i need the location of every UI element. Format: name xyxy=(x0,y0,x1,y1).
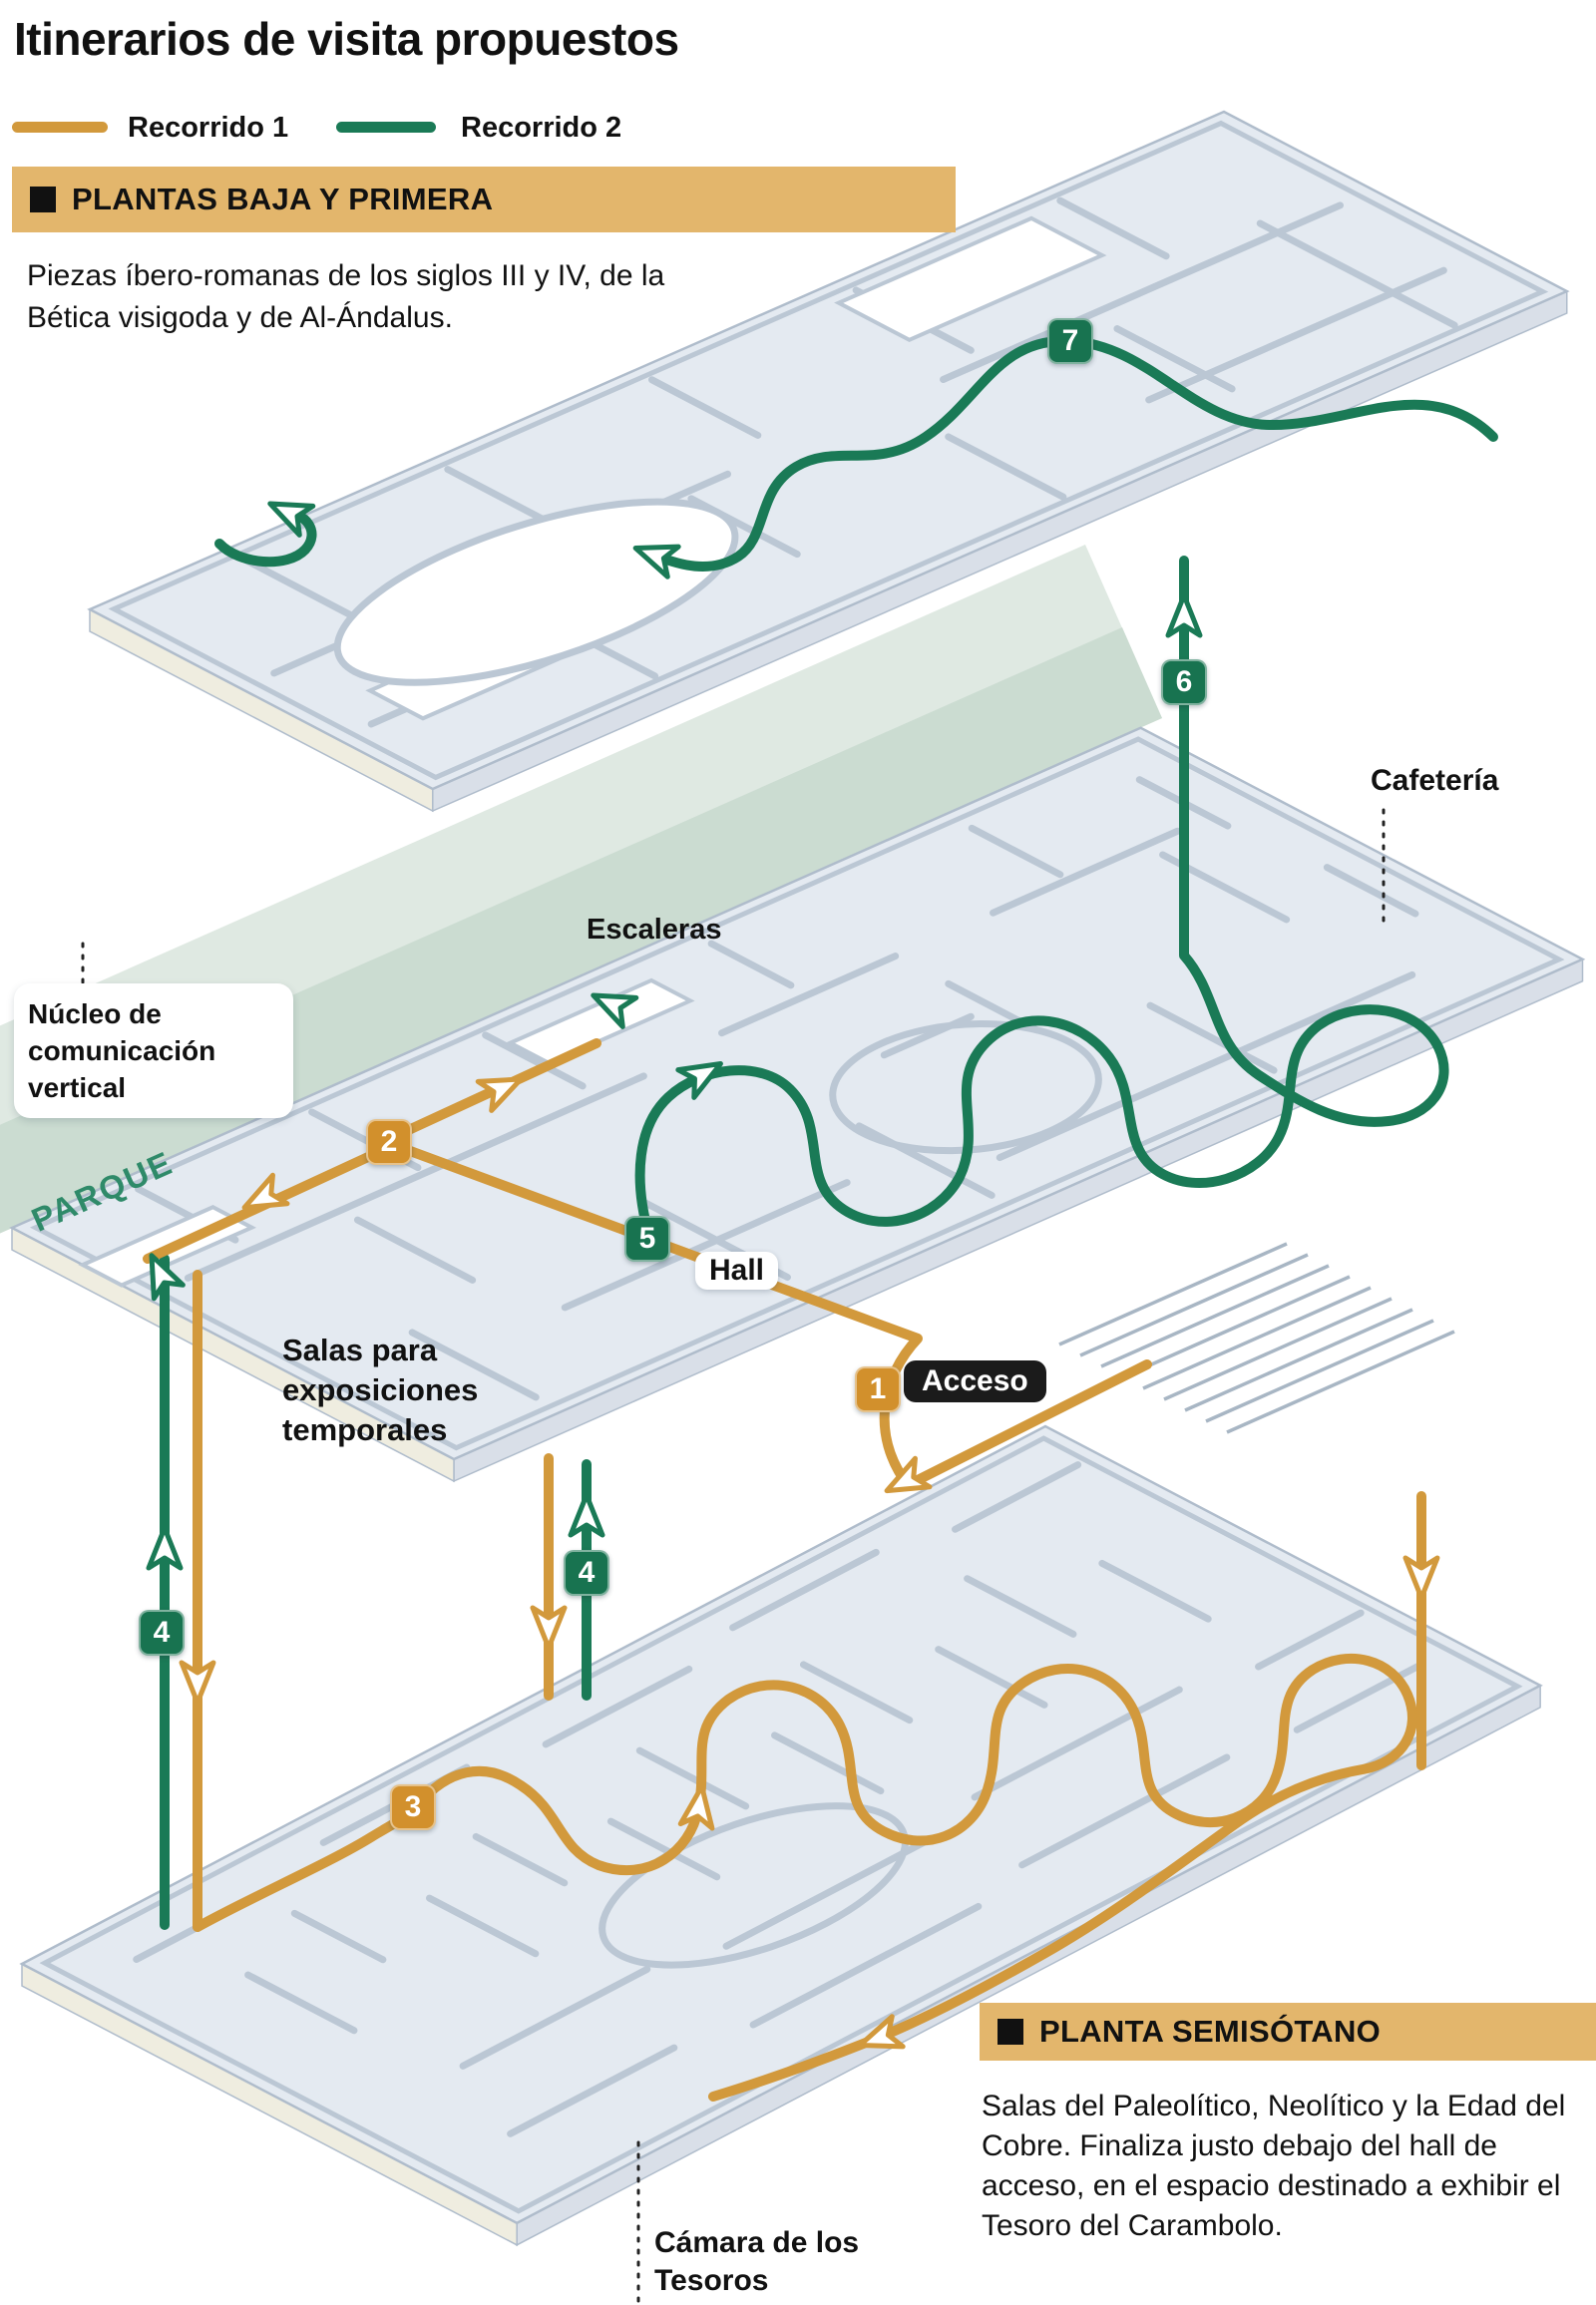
section-title: PLANTAS BAJA Y PRIMERA xyxy=(72,182,493,217)
waypoint-1-badge: 1 xyxy=(855,1366,901,1412)
waypoint-7-badge: 7 xyxy=(1047,318,1093,364)
page-title: Itinerarios de visita propuestos xyxy=(14,12,679,66)
section-bullet-icon xyxy=(30,187,56,212)
section-header-planta-semisotano: PLANTA SEMISÓTANO xyxy=(980,2003,1596,2061)
waypoint-3-badge: 3 xyxy=(390,1784,436,1830)
legend-route2-line xyxy=(336,122,436,133)
label-hall: Hall xyxy=(695,1252,778,1290)
entry-stairs xyxy=(1059,1244,1454,1432)
floor-plan-svg xyxy=(0,0,1596,2305)
label-nucleo-comunicacion-vertical: Núcleo de comunicación vertical xyxy=(14,983,293,1118)
section-bullet-icon xyxy=(997,2019,1023,2045)
infographic: Itinerarios de visita propuestos Recorri… xyxy=(0,0,1596,2305)
section-description-basement: Salas del Paleolítico, Neolítico y la Ed… xyxy=(982,2087,1592,2246)
waypoint-4-badge-left: 4 xyxy=(139,1610,185,1656)
legend-route2-label: Recorrido 2 xyxy=(461,112,621,145)
label-escaleras: Escaleras xyxy=(587,914,721,947)
legend-route1-label: Recorrido 1 xyxy=(128,112,288,145)
label-acceso: Acceso xyxy=(904,1360,1046,1402)
section-title: PLANTA SEMISÓTANO xyxy=(1039,2014,1381,2050)
waypoint-4-badge-mid: 4 xyxy=(564,1550,609,1596)
waypoint-6-badge: 6 xyxy=(1161,659,1207,705)
waypoint-2-badge: 2 xyxy=(366,1119,412,1165)
section-header-plantas-baja-y-primera: PLANTAS BAJA Y PRIMERA xyxy=(12,167,956,232)
section-description-upper: Piezas íbero-romanas de los siglos III y… xyxy=(27,255,715,339)
label-cafeteria: Cafetería xyxy=(1371,764,1498,798)
legend-route1-line xyxy=(12,122,108,133)
waypoint-5-badge: 5 xyxy=(624,1216,670,1262)
label-camara-de-los-tesoros: Cámara de los Tesoros xyxy=(654,2224,874,2300)
label-salas-exposiciones-temporales: Salas para exposiciones temporales xyxy=(282,1331,522,1450)
